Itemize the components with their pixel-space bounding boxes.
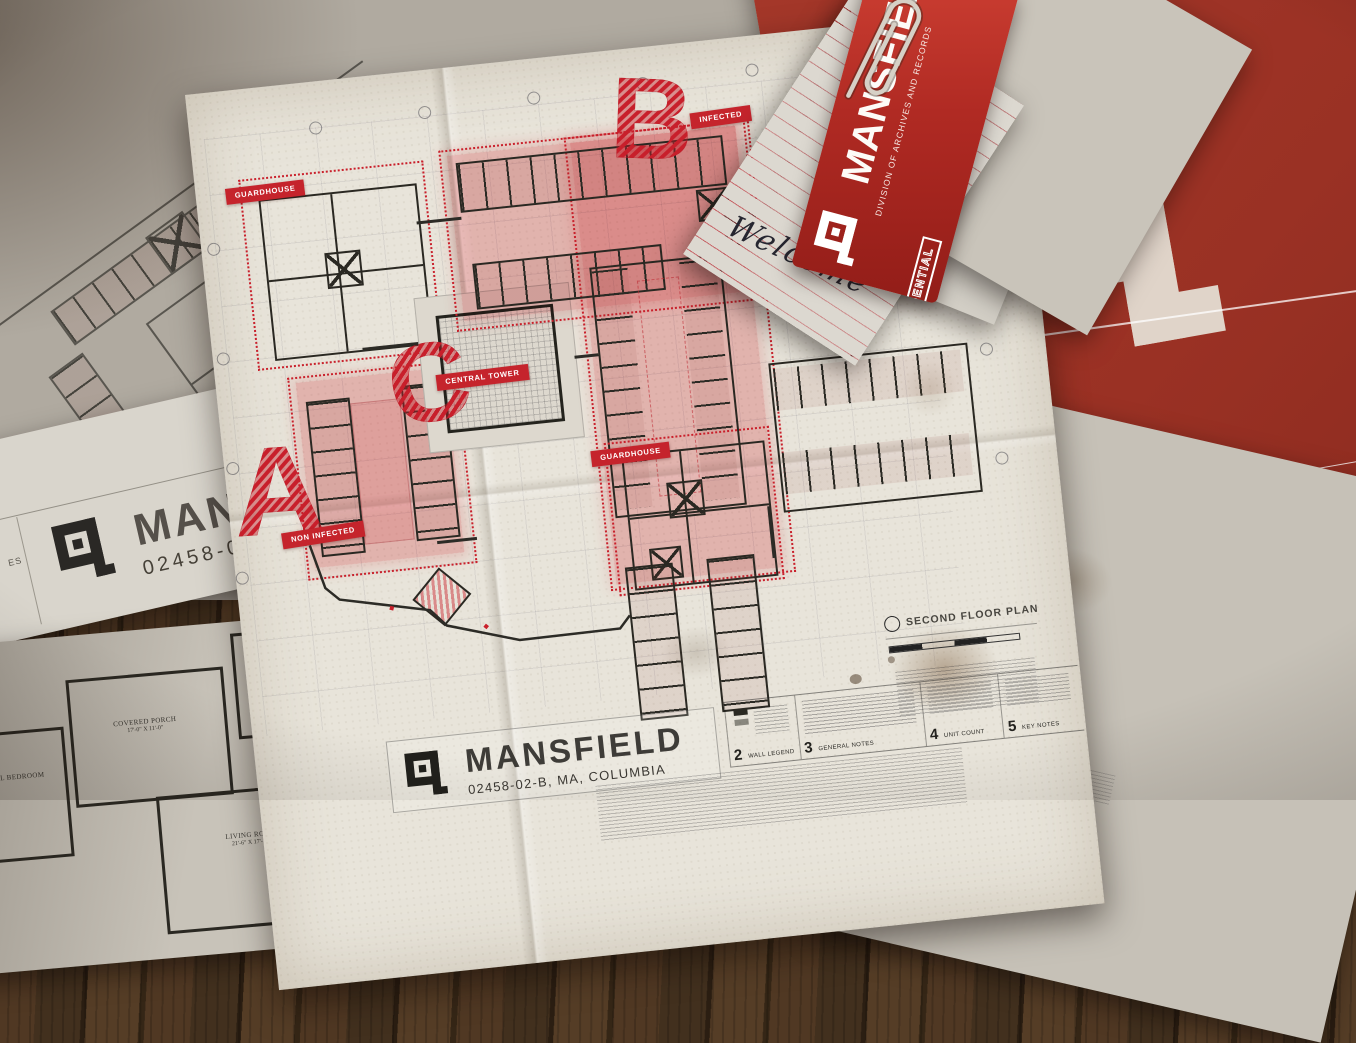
footer-label: GENERAL NOTES [818,741,874,753]
guardhouse-2-elevator [666,479,706,519]
tag-logo [805,204,874,273]
under-sheet-side-text: ES [7,555,23,568]
drawing-title-marker [883,615,901,633]
footer-num: 5 [1007,718,1017,736]
footer-num: 2 [733,746,743,764]
zone-b-letter: B [608,67,695,173]
footer-num: 4 [929,726,939,744]
footer-label: UNIT COUNT [944,729,985,739]
title-block-logo [400,745,457,802]
footer-cell-legend: 2 WALL LEGEND [724,696,802,767]
under-sheet-logo [44,507,128,591]
footer-label: WALL LEGEND [748,749,795,760]
ink-dot [849,673,862,684]
footer-label: KEY NOTES [1022,721,1060,731]
tag-stamp: CONFIDENTIAL [891,236,942,304]
footer-num: 3 [803,739,813,757]
